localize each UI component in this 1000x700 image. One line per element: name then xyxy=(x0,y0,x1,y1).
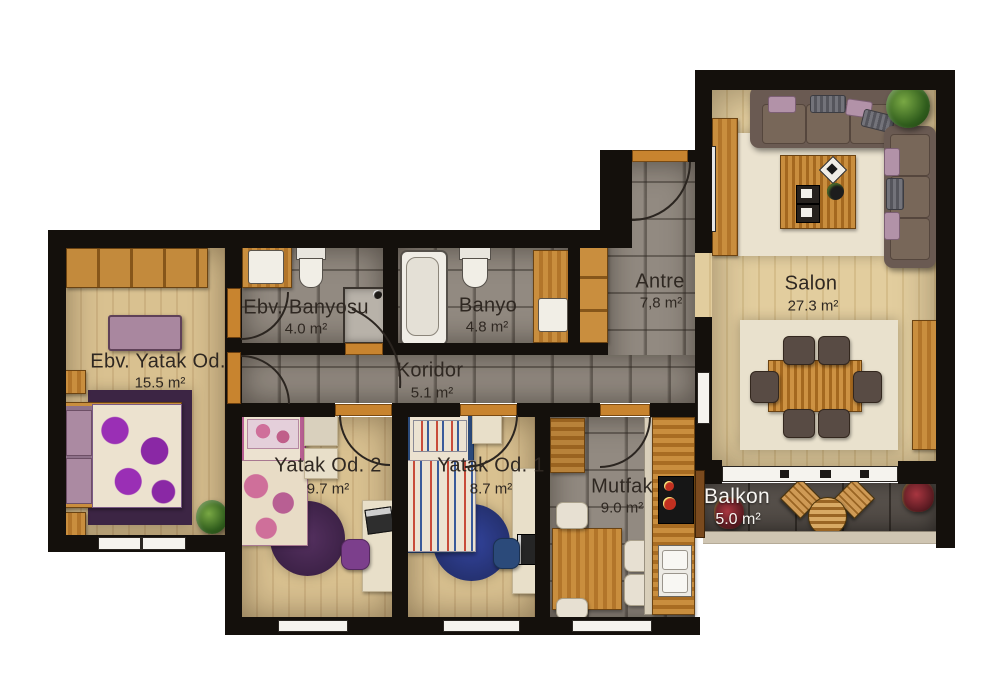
master-bath-sink xyxy=(248,250,284,284)
kitchen-fridge xyxy=(550,418,585,473)
kitchen-chair-top xyxy=(556,502,588,529)
balcony-pot-right xyxy=(902,480,934,512)
label-bedroom-2: Yatak Od. 2 xyxy=(274,455,381,478)
wall-salon-top xyxy=(695,70,955,90)
laptop-icon xyxy=(364,506,394,535)
sideboard xyxy=(912,320,938,450)
wall-salon-right xyxy=(936,70,955,548)
label-kitchen: Mutfak xyxy=(591,476,653,499)
bedroom1-pillow xyxy=(413,420,467,452)
entry-cabinet xyxy=(578,245,608,343)
master-plant xyxy=(196,500,228,534)
bath-toilet-bowl xyxy=(462,258,488,288)
threshold-bedroom1-door xyxy=(460,404,517,416)
wall-bath-entry xyxy=(568,245,580,345)
bedroom1-chair xyxy=(493,538,520,569)
area-bedroom-1: 8.7 m² xyxy=(470,481,513,498)
stove-burner-1 xyxy=(664,481,674,491)
bathtub-inner xyxy=(406,257,439,336)
sofa-pillow-mauve-1 xyxy=(768,96,796,113)
window-balcony-tick-2 xyxy=(820,470,831,478)
sofa-right-pillow-2 xyxy=(886,178,904,210)
window-balcony-tick-1 xyxy=(780,470,789,478)
master-pillow-1 xyxy=(66,410,92,456)
coffee-tray-1-napkin xyxy=(801,189,812,198)
dining-chair-bottom-1 xyxy=(783,409,815,438)
wall-corridor-bottom-1 xyxy=(225,403,335,417)
wall-corridor-bottom-3 xyxy=(517,403,600,417)
master-pillow-2 xyxy=(66,458,92,504)
floor-passage xyxy=(695,253,712,317)
coffee-tray-2-napkin xyxy=(801,208,812,217)
dining-chair-top-2 xyxy=(818,336,850,365)
wall-baths-bottom-left xyxy=(225,343,345,355)
living-room-plant xyxy=(886,84,930,128)
area-master-bedroom: 15.5 m² xyxy=(135,375,186,392)
label-bedroom-1: Yatak Od. 1 xyxy=(437,455,544,478)
sofa-pillow-stripe-1 xyxy=(810,95,846,113)
door-leaf-master-bath xyxy=(227,288,241,338)
stove-burner-2 xyxy=(663,497,676,510)
window-master-mullion xyxy=(140,537,143,550)
floor-plan: Ebv. Yatak Od. 15.5 m² Ebv. Banyosu 4.0 … xyxy=(0,0,1000,700)
decor-bowl-icon xyxy=(827,183,844,200)
bedroom2-chair xyxy=(341,539,370,570)
bedroom2-pillow xyxy=(247,419,299,449)
bedroom2-cabinet-1 xyxy=(304,413,338,446)
dining-chair-bottom-2 xyxy=(818,409,850,438)
area-kitchen: 9.0 m² xyxy=(601,500,644,517)
balcony-railing xyxy=(703,531,936,544)
master-bath-toilet-bowl xyxy=(299,258,323,288)
dining-table xyxy=(768,360,862,412)
label-bathroom: Banyo xyxy=(459,295,517,318)
kitchen-sink-bowl-1 xyxy=(662,550,688,570)
window-kitchen xyxy=(572,620,652,632)
shower-head-icon xyxy=(373,290,382,299)
area-bathroom: 4.8 m² xyxy=(466,319,509,336)
wall-top-main xyxy=(48,230,624,248)
sofa-right-pillow-1 xyxy=(884,148,900,176)
wall-entry-spur xyxy=(600,150,632,248)
label-master-bathroom: Ebv. Banyosu xyxy=(243,297,369,320)
label-master-bedroom: Ebv. Yatak Od. xyxy=(90,351,225,374)
dining-chair-right xyxy=(853,371,882,403)
label-corridor: Koridor xyxy=(397,360,464,383)
area-corridor: 5.1 m² xyxy=(411,385,454,402)
wall-bath-divider xyxy=(383,230,398,355)
master-duvet xyxy=(92,404,182,508)
label-entry-hall: Antre xyxy=(635,271,684,294)
threshold-bath-door xyxy=(345,343,383,355)
master-wardrobe xyxy=(66,248,208,288)
floor-corridor xyxy=(242,355,695,403)
bath-sink xyxy=(538,298,568,332)
wall-salon-west-upper xyxy=(695,70,712,253)
window-balcony-band xyxy=(722,466,898,482)
sofa-right-pillow-3 xyxy=(884,212,900,240)
wall-bedroom-divider xyxy=(392,403,408,635)
area-master-bathroom: 4.0 m² xyxy=(285,321,328,338)
threshold-kitchen-door xyxy=(600,404,650,416)
threshold-entry-door xyxy=(632,150,688,162)
wall-master-left xyxy=(48,230,66,552)
kitchen-sink-bowl-2 xyxy=(662,573,688,593)
area-bedroom-2: 9.7 m² xyxy=(307,481,350,498)
wall-corridor-bottom-4 xyxy=(650,403,695,417)
label-living-room: Salon xyxy=(785,273,838,296)
kitchen-chair-bottom xyxy=(556,598,588,619)
door-leaf-master-bedroom xyxy=(227,352,241,404)
window-balcony-tick-3 xyxy=(860,470,869,478)
window-bedroom1 xyxy=(443,620,520,632)
area-living-room: 27.3 m² xyxy=(788,298,839,315)
dining-chair-left xyxy=(750,371,779,403)
area-entry-hall: 7,8 m² xyxy=(640,295,683,312)
wall-balcony-corner-right xyxy=(898,461,938,484)
area-balcony: 5.0 m² xyxy=(715,511,760,529)
wall-kitchen-divider xyxy=(535,403,550,635)
window-salon-west xyxy=(697,372,710,424)
dining-chair-top-1 xyxy=(783,336,815,365)
threshold-bedroom2-door xyxy=(335,404,392,416)
bedroom1-cabinet xyxy=(472,413,502,444)
label-balcony: Balkon xyxy=(704,485,770,509)
window-bedroom2 xyxy=(278,620,348,632)
master-bench xyxy=(108,315,182,351)
